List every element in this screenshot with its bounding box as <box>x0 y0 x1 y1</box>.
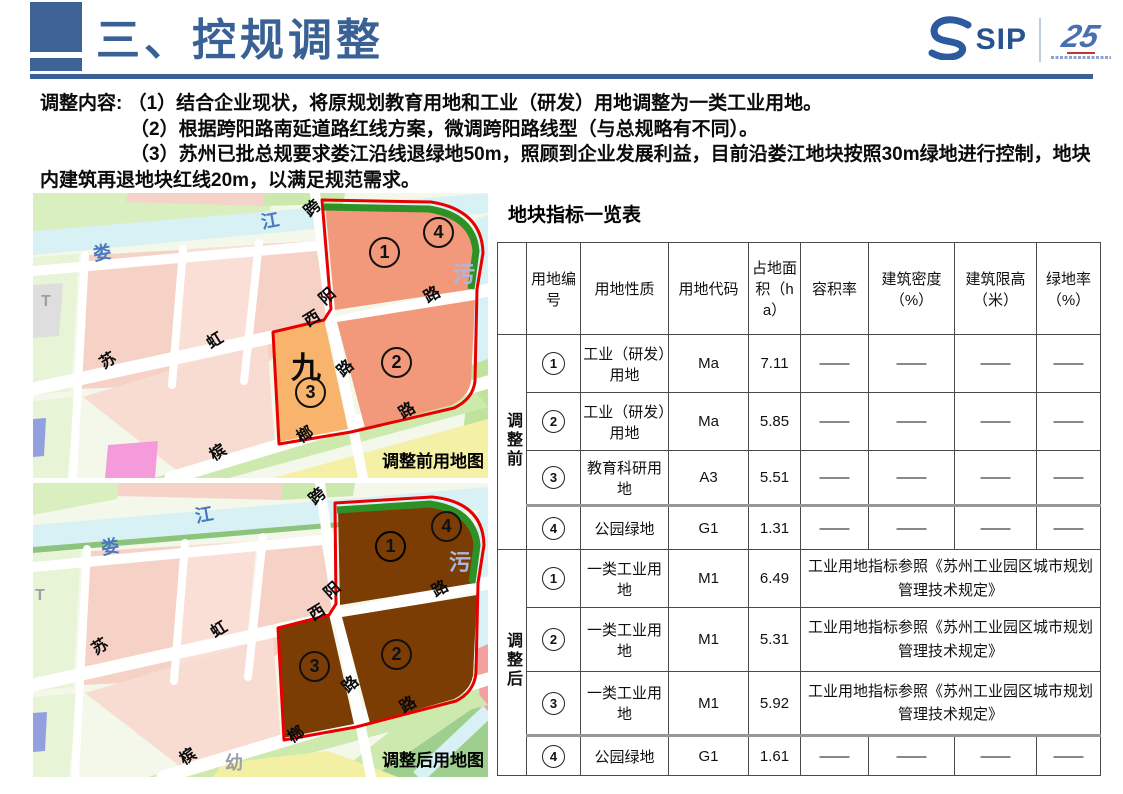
cell-nature: 工业（研发）用地 <box>581 335 669 393</box>
cell-plot-no: 1 <box>527 550 581 608</box>
anniversary-mark: 25 <box>1051 21 1111 59</box>
cell-area: 1.31 <box>749 506 801 550</box>
transit-label: T <box>41 293 51 311</box>
table-row: 调整前 1 工业（研发）用地 Ma 7.11 —— —— —— —— <box>498 335 1101 393</box>
table-row: 调整后 1 一类工业用地 M1 6.49 工业用地指标参照《苏州工业园区城市规划… <box>498 550 1101 608</box>
cell-height-limit: —— <box>955 451 1037 506</box>
cell-area: 6.49 <box>749 550 801 608</box>
header-height-limit: 建筑限高（米） <box>955 243 1037 335</box>
cell-far: —— <box>801 736 869 776</box>
cell-density: —— <box>869 393 955 451</box>
intro-line-1: 调整内容: （1）结合企业现状，将原规划教育用地和工业（研发）用地调整为一类工业… <box>40 91 1095 117</box>
header-area: 占地面积（ha） <box>749 243 801 335</box>
landuse-map-before: 娄 江 跨 阳 路 西 虹 苏 路 槟 榔 路 污 T 九 1 2 3 4 调整… <box>33 193 488 478</box>
cell-plot-no: 3 <box>527 672 581 736</box>
cell-height-limit: —— <box>955 393 1037 451</box>
cell-plot-no: 2 <box>527 393 581 451</box>
table-row: 4 公园绿地 G1 1.61 —— —— —— —— <box>498 736 1101 776</box>
cell-nature: 教育科研用地 <box>581 451 669 506</box>
header-rule <box>30 74 1093 79</box>
cell-note: 工业用地指标参照《苏州工业园区城市规划管理技术规定》 <box>801 672 1101 736</box>
cell-far: —— <box>801 335 869 393</box>
title-decoration-bar <box>30 58 82 71</box>
cell-code: G1 <box>669 736 749 776</box>
cell-code: Ma <box>669 335 749 393</box>
block-number-2: 2 <box>381 639 412 670</box>
table-row: 2 一类工业用地 M1 5.31 工业用地指标参照《苏州工业园区城市规划管理技术… <box>498 608 1101 672</box>
header-empty <box>498 243 527 335</box>
cell-note: 工业用地指标参照《苏州工业园区城市规划管理技术规定》 <box>801 608 1101 672</box>
section-label-before: 调整前 <box>498 335 527 550</box>
water-label: 污 <box>453 257 475 289</box>
map-caption-after: 调整后用地图 <box>382 746 484 771</box>
header-nature: 用地性质 <box>581 243 669 335</box>
block-number-3: 3 <box>299 651 330 682</box>
cell-far: —— <box>801 451 869 506</box>
page-title: 三、控规调整 <box>96 4 384 68</box>
kindergarten-label: 幼 <box>225 749 243 775</box>
header-density: 建筑密度（%） <box>869 243 955 335</box>
table-header-row: 用地编号 用地性质 用地代码 占地面积（ha） 容积率 建筑密度（%） 建筑限高… <box>498 243 1101 335</box>
intro-line-2: （2）根据跨阳路南延道路红线方案，微调跨阳路线型（与总规略有不同）。 <box>130 117 1095 143</box>
logo-divider <box>1039 18 1041 62</box>
cell-density: —— <box>869 736 955 776</box>
intro-item1: （1）结合企业现状，将原规划教育用地和工业（研发）用地调整为一类工业用地。 <box>128 93 823 114</box>
water-label: 污 <box>449 545 471 577</box>
table-row: 4 公园绿地 G1 1.31 —— —— —— —— <box>498 506 1101 550</box>
cell-plot-no: 2 <box>527 608 581 672</box>
slide: { "colors": { "accent_blue": "#3A6195", … <box>0 0 1123 794</box>
cell-far: —— <box>801 393 869 451</box>
cell-green-rate: —— <box>1037 736 1101 776</box>
header-plot-no: 用地编号 <box>527 243 581 335</box>
cell-code: Ma <box>669 393 749 451</box>
section-label-after: 调整后 <box>498 550 527 776</box>
map-caption-before: 调整前用地图 <box>382 447 484 472</box>
cell-code: M1 <box>669 608 749 672</box>
cell-code: M1 <box>669 672 749 736</box>
cell-green-rate: —— <box>1037 506 1101 550</box>
cell-note: 工业用地指标参照《苏州工业园区城市规划管理技术规定》 <box>801 550 1101 608</box>
cell-nature: 一类工业用地 <box>581 550 669 608</box>
cell-area: 5.31 <box>749 608 801 672</box>
block-number-3: 3 <box>295 377 326 408</box>
block-number-4: 4 <box>431 511 462 542</box>
cell-height-limit: —— <box>955 736 1037 776</box>
intro-item2-normal: （2）根据跨阳路南延道路红线方案， <box>130 119 445 140</box>
cell-plot-no: 4 <box>527 506 581 550</box>
cell-nature: 工业（研发）用地 <box>581 393 669 451</box>
cell-height-limit: —— <box>955 335 1037 393</box>
cell-green-rate: —— <box>1037 335 1101 393</box>
cell-height-limit: —— <box>955 506 1037 550</box>
intro-item3: （3）苏州已批总规要求娄江沿线退绿地50m，照顾到企业发展利益，目前沿娄江地块按… <box>40 144 1091 191</box>
cell-green-rate: —— <box>1037 393 1101 451</box>
sip-swoosh-icon <box>926 16 972 65</box>
table-title: 地块指标一览表 <box>508 200 641 227</box>
map-after-graphic <box>33 483 488 777</box>
map-before-graphic <box>33 193 488 478</box>
adjustment-content-text: 调整内容: （1）结合企业现状，将原规划教育用地和工业（研发）用地调整为一类工业… <box>40 91 1095 193</box>
intro-prefix: 调整内容: <box>40 93 122 114</box>
header-green-rate: 绿地率（%） <box>1037 243 1101 335</box>
table-row: 3 教育科研用地 A3 5.51 —— —— —— —— <box>498 451 1101 506</box>
cell-nature: 公园绿地 <box>581 736 669 776</box>
header-code: 用地代码 <box>669 243 749 335</box>
cell-far: —— <box>801 506 869 550</box>
cell-code: A3 <box>669 451 749 506</box>
cell-area: 1.61 <box>749 736 801 776</box>
cell-green-rate: —— <box>1037 451 1101 506</box>
anniversary-microtext-blue <box>1051 56 1111 59</box>
cell-area: 7.11 <box>749 335 801 393</box>
cell-plot-no: 1 <box>527 335 581 393</box>
cell-area: 5.92 <box>749 672 801 736</box>
cell-density: —— <box>869 506 955 550</box>
cell-density: —— <box>869 451 955 506</box>
cell-area: 5.85 <box>749 393 801 451</box>
cell-code: M1 <box>669 550 749 608</box>
intro-item2-bold: 微调跨阳路线型（与总规略有不同）。 <box>445 119 759 140</box>
table-row: 2 工业（研发）用地 Ma 5.85 —— —— —— —— <box>498 393 1101 451</box>
cell-nature: 公园绿地 <box>581 506 669 550</box>
cell-plot-no: 3 <box>527 451 581 506</box>
transit-label: T <box>35 587 45 605</box>
cell-density: —— <box>869 335 955 393</box>
sip-logo-text: SIP <box>976 23 1027 57</box>
landuse-map-after: 跨 江 娄 阳 路 西 虹 苏 路 槟 榔 路 污 T 幼 1 2 3 4 调整… <box>33 483 488 777</box>
intro-line-3: （3）苏州已批总规要求娄江沿线退绿地50m，照顾到企业发展利益，目前沿娄江地块按… <box>40 142 1095 193</box>
cell-code: G1 <box>669 506 749 550</box>
cell-area: 5.51 <box>749 451 801 506</box>
title-decoration-square <box>30 2 82 52</box>
plot-indicators-table: 用地编号 用地性质 用地代码 占地面积（ha） 容积率 建筑密度（%） 建筑限高… <box>497 242 1101 776</box>
cell-nature: 一类工业用地 <box>581 672 669 736</box>
block-number-1: 1 <box>369 237 400 268</box>
block-number-2: 2 <box>381 347 412 378</box>
anniversary-25: 25 <box>1059 21 1102 51</box>
cell-plot-no: 4 <box>527 736 581 776</box>
header-far: 容积率 <box>801 243 869 335</box>
block-number-4: 4 <box>423 217 454 248</box>
sip-logo: SIP 25 <box>926 14 1111 66</box>
cell-nature: 一类工业用地 <box>581 608 669 672</box>
table-row: 3 一类工业用地 M1 5.92 工业用地指标参照《苏州工业园区城市规划管理技术… <box>498 672 1101 736</box>
block-number-1: 1 <box>375 531 406 562</box>
